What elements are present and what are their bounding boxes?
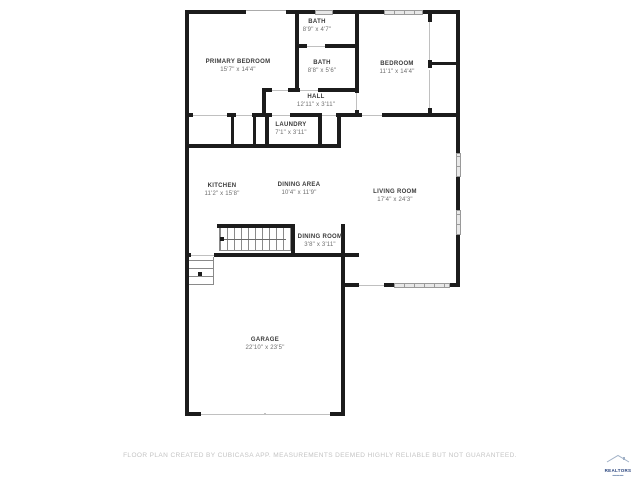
wall [265,113,269,148]
stair-direction-dot [220,237,224,241]
brokerage-logo: REALTORS ▬▬▬ [601,450,635,477]
room-label-bath-upper: BATH 8'9" x 4'7" [303,18,331,34]
door-opening [359,285,384,286]
room-label-laundry: LAUNDRY 7'1" x 3'11" [275,121,307,137]
wall [456,177,460,210]
door-opening [191,255,214,256]
room-label-primary-bedroom: PRIMARY BEDROOM 15'7" x 14'4" [206,58,271,74]
floorplan-canvas: BATH 8'9" x 4'7" PRIMARY BEDROOM 15'7" x… [0,0,640,480]
disclaimer-text: FLOOR PLAN CREATED BY CUBICASA APP. MEAS… [0,452,640,459]
room-name: LAUNDRY [275,121,307,129]
room-label-dining-room: DINING ROOM 3'8" x 3'11" [298,233,343,249]
door-opening [193,115,227,116]
garage-steps [189,257,214,285]
room-name: BEDROOM [379,60,414,68]
door-opening [300,90,318,91]
wall [214,253,345,257]
room-label-hall: HALL 12'11" x 3'11" [297,93,335,109]
wall [450,283,460,287]
wall [286,10,315,14]
room-dims: 15'7" x 14'4" [206,66,271,74]
garage-steps-dot [198,272,202,276]
room-label-kitchen: KITCHEN 11'2" x 15'8" [204,182,239,198]
wall [384,283,394,287]
window [384,10,423,15]
room-name: GARAGE [245,336,284,344]
room-label-garage: GARAGE 22'10" x 23'5" [245,336,284,352]
window [456,153,461,177]
door-opening [264,413,266,415]
room-name: BATH [308,59,336,67]
wall [428,14,432,22]
room-name: KITCHEN [204,182,239,190]
room-dims: 17'4" x 24'3" [373,196,417,204]
wall [290,113,320,117]
window-opening [246,10,286,14]
room-name: PRIMARY BEDROOM [206,58,271,66]
room-label-dining-area: DINING AREA 10'4" x 11'9" [278,181,321,197]
room-dims: 7'1" x 3'11" [275,129,307,137]
wall [345,283,359,287]
wall [288,88,300,92]
wall [231,117,234,144]
wall [295,14,299,88]
wall [318,113,322,148]
wall [456,10,460,153]
room-name: LIVING ROOM [373,188,417,196]
stair-direction-line [224,239,286,240]
wall [253,117,256,144]
room-dims: 10'4" x 11'9" [278,189,321,197]
room-dims: 11'1" x 14'4" [379,68,414,76]
door-opening [362,115,382,116]
door-opening [320,115,336,116]
wall [185,113,193,117]
roof-icon [605,454,631,463]
wall [185,144,340,148]
door-opening [272,115,290,116]
wall [382,113,460,117]
room-label-living-room: LIVING ROOM 17'4" x 24'3" [373,188,417,204]
wall [185,10,189,416]
window [456,210,461,235]
brokerage-logo-subtext: ▬▬▬ [601,473,635,477]
door-opening [429,22,430,60]
wall [456,235,460,287]
room-name: HALL [297,93,335,101]
wall [355,14,359,93]
room-dims: 12'11" x 3'11" [297,101,335,109]
wall [325,44,357,48]
wall [318,88,357,92]
room-label-bath-mid: BATH 8'8" x 5'6" [308,59,336,75]
room-name: BATH [303,18,331,26]
door-opening [429,70,430,108]
room-dims: 11'2" x 15'8" [204,190,239,198]
window [315,10,333,15]
wall [430,62,456,65]
door-opening [356,93,357,110]
room-label-bedroom: BEDROOM 11'1" x 14'4" [379,60,414,76]
room-name: DINING ROOM [298,233,343,241]
room-dims: 22'10" x 23'5" [245,344,284,352]
wall [262,88,266,117]
wall [291,224,295,255]
room-name: DINING AREA [278,181,321,189]
room-dims: 8'8" x 5'6" [308,67,336,75]
door-opening [236,115,252,116]
window [394,283,450,288]
wall [185,412,201,416]
wall [345,253,359,257]
door-opening [272,90,288,91]
wall [185,10,246,14]
door-opening [307,46,325,47]
room-dims: 8'9" x 4'7" [303,26,331,34]
room-dims: 3'8" x 3'11" [298,241,343,249]
wall [330,412,345,416]
